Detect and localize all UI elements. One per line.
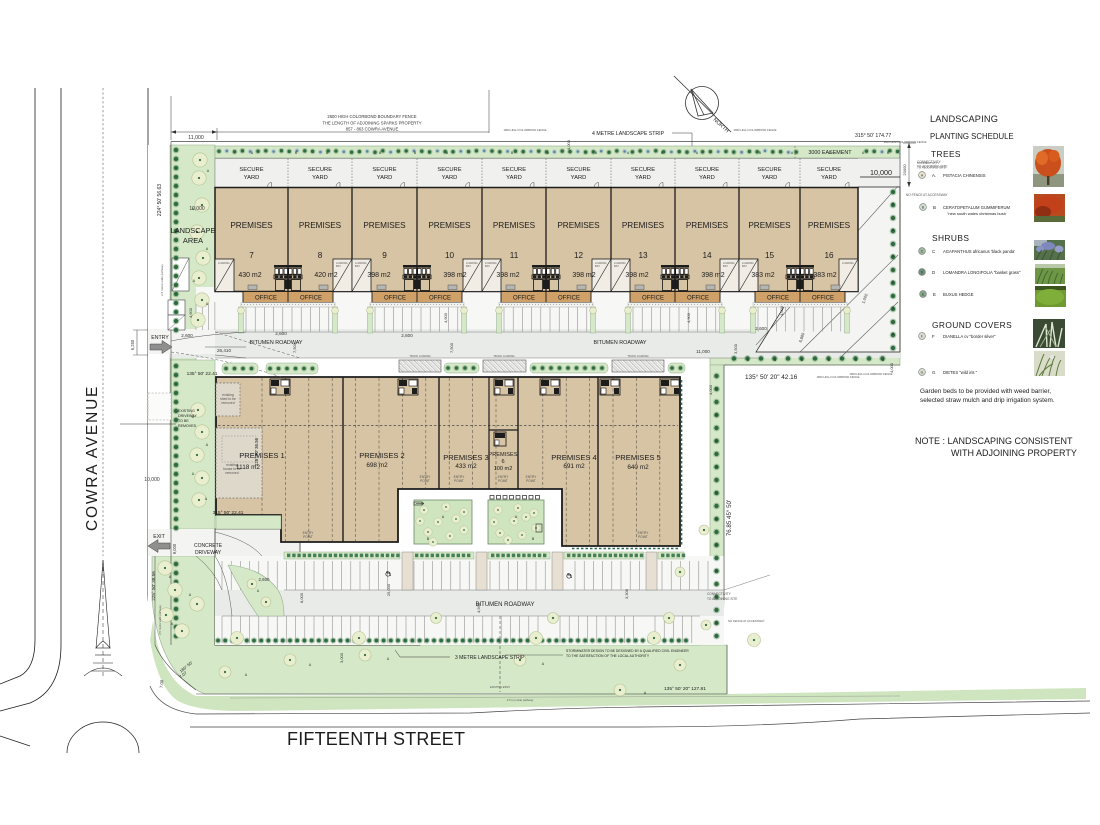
svg-text:SECURE: SECURE [566,167,590,173]
svg-text:100 m2: 100 m2 [494,466,513,472]
svg-text:PREMISES: PREMISES [299,221,342,230]
svg-text:EXIT: EXIT [153,534,165,540]
svg-text:691 m2: 691 m2 [563,463,585,470]
svg-text:PREMISES 4: PREMISES 4 [551,453,597,462]
svg-text:TREES: TREES [931,149,961,159]
svg-text:398 m2: 398 m2 [701,272,724,279]
svg-text:OFFICE: OFFICE [812,296,834,302]
svg-text:CONCRETE: CONCRETE [194,543,223,549]
svg-text:SECURE: SECURE [308,167,332,173]
svg-text:135° 50' 20" 42.16: 135° 50' 20" 42.16 [745,373,798,381]
svg-text:YARD: YARD [699,175,715,181]
svg-text:NOTE : LANDSCAPING CONSISTENT: NOTE : LANDSCAPING CONSISTENT [915,436,1073,446]
svg-text:PREMISES: PREMISES [808,221,851,230]
svg-text:PREMISES: PREMISES [230,221,273,230]
svg-text:2,600: 2,600 [259,577,271,582]
svg-text:POINT: POINT [498,479,508,483]
svg-text:CONNECTIVITY: CONNECTIVITY [917,161,939,165]
svg-text:YARD: YARD [377,175,393,181]
svg-text:OFFICE: OFFICE [767,296,789,302]
svg-text:PREMISES: PREMISES [748,221,791,230]
svg-text:LOMANDRA LONGIFOLIA "basket gr: LOMANDRA LONGIFOLIA "basket grass" [943,270,1021,275]
svg-text:TO ADJOINING SITE: TO ADJOINING SITE [707,597,737,601]
svg-text:YARD: YARD [762,175,778,181]
svg-text:225° 50' 36.56: 225° 50' 36.56 [254,437,259,466]
svg-text:OFFICE: OFFICE [513,296,535,302]
svg-text:LANDSCAPING: LANDSCAPING [930,114,998,124]
svg-text:FIFTEENTH STREET: FIFTEENTH STREET [287,729,465,749]
svg-text:13: 13 [638,251,648,260]
svg-text:PLANTING SCHEDULE: PLANTING SCHEDULE [930,132,1014,141]
svg-text:11,000: 11,000 [188,135,204,141]
svg-text:PREMISES: PREMISES [363,221,406,230]
svg-text:BAY: BAY [614,264,619,268]
svg-text:SHRUBS: SHRUBS [932,233,969,243]
svg-text:430 m2: 430 m2 [238,272,261,279]
svg-text:F: F [921,335,923,339]
svg-text:YARD: YARD [442,175,458,181]
svg-text:YARD: YARD [571,175,587,181]
svg-text:POINT: POINT [454,479,464,483]
svg-text:8,000: 8,000 [299,592,304,603]
svg-text:BITUMEN ROADWAY: BITUMEN ROADWAY [593,340,646,346]
svg-text:10,000: 10,000 [870,168,892,177]
svg-text:TO BE: TO BE [178,419,189,423]
svg-text:PREMISES: PREMISES [557,221,600,230]
svg-text:SECURE: SECURE [437,167,461,173]
svg-text:SECURE: SECURE [695,167,719,173]
svg-text:315° 50' 22.41: 315° 50' 22.41 [213,510,244,516]
svg-text:"new south wales christmas bus: "new south wales christmas bush [947,211,1006,216]
svg-text:OFFICE: OFFICE [642,296,664,302]
svg-text:POINT: POINT [420,479,430,483]
svg-text:CONNECTIVITY: CONNECTIVITY [707,592,732,596]
svg-text:OFFICE: OFFICE [687,296,709,302]
svg-text:AGAPANTHUS africanus 'black: AGAPANTHUS africanus 'black panda' [943,249,1015,254]
svg-text:1800 HIGH COLORBOND FENCE: 1800 HIGH COLORBOND FENCE [816,375,859,379]
svg-text:9,000: 9,000 [172,543,177,554]
svg-text:383 m2: 383 m2 [813,272,836,279]
svg-text:PREMISES 2: PREMISES 2 [359,451,405,460]
svg-text:THE LENGTH OF ADJOINING SPARKS: THE LENGTH OF ADJOINING SPARKS PROPERTY [322,121,421,126]
svg-text:PREMISES: PREMISES [493,221,536,230]
svg-text:SECURE: SECURE [817,167,841,173]
svg-text:TO THE SATISFACTION OF THE LOC: TO THE SATISFACTION OF THE LOCAL AUTHORI… [566,654,650,658]
svg-text:4,000: 4,000 [889,362,894,373]
svg-text:WITH ADJOINING PROPERTY: WITH ADJOINING PROPERTY [951,448,1077,458]
svg-text:E: E [933,292,936,297]
svg-text:DRIVEWAY: DRIVEWAY [195,550,222,556]
svg-text:25,000: 25,000 [386,583,391,596]
svg-text:1800 HIGH COLORBOND FENCE: 1800 HIGH COLORBOND FENCE [503,128,546,132]
svg-text:PISTACIA CHINENSIS: PISTACIA CHINENSIS [943,173,986,178]
svg-text:15: 15 [765,251,775,260]
svg-text:BAY: BAY [723,264,728,268]
svg-text:14: 14 [702,251,712,260]
svg-text:698 m2: 698 m2 [366,462,388,469]
svg-text:REMOVED: REMOVED [178,424,197,428]
svg-text:removed: removed [221,401,234,405]
svg-text:1800 HIGH COLORBOND FENCE: 1800 HIGH COLORBOND FENCE [883,140,926,144]
svg-text:TRUCK LOADING: TRUCK LOADING [627,354,648,358]
svg-text:398 m2: 398 m2 [367,272,390,279]
svg-text:11,000: 11,000 [696,349,710,354]
svg-text:DRIVEWAY: DRIVEWAY [178,414,197,418]
svg-text:433 m2: 433 m2 [455,463,477,470]
svg-text:2,600: 2,600 [181,333,193,338]
svg-text:12: 12 [574,251,584,260]
svg-text:7: 7 [249,251,254,260]
svg-text:POINT: POINT [526,479,536,483]
svg-text:7.00: 7.00 [159,679,165,688]
svg-text:6: 6 [501,459,504,465]
svg-text:7,500: 7,500 [449,342,454,353]
svg-text:POINT: POINT [638,535,648,539]
svg-text:3,500: 3,500 [733,343,738,354]
svg-text:BAY: BAY [336,264,341,268]
svg-text:PREMISES: PREMISES [686,221,729,230]
svg-text:857 - 863 COWRA AVENUE: 857 - 863 COWRA AVENUE [346,127,399,132]
svg-text:NO FENCE AT ACCESSWAY: NO FENCE AT ACCESSWAY [906,193,949,197]
svg-text:POINT: POINT [303,535,313,539]
svg-text:4,600: 4,600 [188,307,193,318]
svg-text:OFFICE: OFFICE [255,296,277,302]
svg-text:4 METRE LANDSCAPE STRIP: 4 METRE LANDSCAPE STRIP [592,131,665,137]
svg-text:2.5 (m) wide pathway: 2.5 (m) wide pathway [507,698,534,702]
svg-text:BAY: BAY [742,264,747,268]
svg-text:YARD: YARD [821,175,837,181]
svg-text:SECURE: SECURE [757,167,781,173]
svg-text:11: 11 [510,251,519,260]
svg-text:SECURE: SECURE [631,167,655,173]
svg-text:CERATOPETALUM GUMMIFERUM: CERATOPETALUM GUMMIFERUM [943,205,1011,210]
svg-text:YARD: YARD [244,175,260,181]
svg-text:PREMISES 5: PREMISES 5 [615,453,661,462]
svg-text:PREMISES: PREMISES [622,221,665,230]
svg-text:9: 9 [382,251,387,260]
svg-text:PREMISES 1: PREMISES 1 [239,451,285,460]
svg-text:10,000: 10,000 [189,206,205,212]
svg-text:4,000: 4,000 [779,305,784,316]
svg-text:2,600: 2,600 [401,333,413,338]
svg-text:16: 16 [824,251,834,260]
svg-text:BAY: BAY [466,264,471,268]
svg-text:TRUCK LOADING: TRUCK LOADING [493,354,514,358]
svg-text:398 m2: 398 m2 [443,272,466,279]
svg-text:SECURE: SECURE [372,167,396,173]
svg-text:GROUND COVERS: GROUND COVERS [932,320,1012,330]
svg-text:2.5 metre wide pathway: 2.5 metre wide pathway [158,605,162,635]
svg-text:Garden beds to be provided wit: Garden beds to be provided with weed bar… [920,388,1051,395]
svg-text:YARD: YARD [635,175,651,181]
svg-text:383 m2: 383 m2 [751,272,774,279]
svg-text:YARD: YARD [312,175,328,181]
svg-text:2,600: 2,600 [755,326,767,331]
svg-text:10: 10 [445,251,455,260]
svg-text:398 m2: 398 m2 [496,272,519,279]
svg-text:A.: A. [932,173,936,178]
svg-text:4,000: 4,000 [566,139,571,150]
svg-text:3,300: 3,300 [624,588,629,599]
svg-text:4,000: 4,000 [708,384,713,395]
svg-text:G: G [921,371,924,375]
svg-text:398 m2: 398 m2 [572,272,595,279]
svg-text:640 m2: 640 m2 [627,464,649,471]
svg-text:LOADING: LOADING [842,261,854,265]
svg-text:removed: removed [225,471,238,475]
svg-text:NO FENCE AT ACCESSWAY: NO FENCE AT ACCESSWAY [728,619,765,623]
svg-text:BITUMEN ROADWAY: BITUMEN ROADWAY [475,602,534,608]
svg-text:LOADING: LOADING [218,261,230,265]
svg-text:LANDSCAPE: LANDSCAPE [171,226,216,235]
svg-text:PREMISES 3: PREMISES 3 [443,453,489,462]
svg-text:G: G [932,370,936,375]
svg-text:D: D [932,270,935,275]
svg-text:8: 8 [318,251,323,260]
svg-text:1800 HIGH COLORBOND FENCE: 1800 HIGH COLORBOND FENCE [733,128,776,132]
svg-text:20000: 20000 [902,164,907,176]
svg-text:3,000: 3,000 [339,652,344,663]
svg-text:AREA: AREA [183,236,203,245]
svg-text:2,600: 2,600 [275,331,287,336]
svg-text:YARD: YARD [506,175,522,181]
svg-text:2600 HIGH COLORBOND BOUNDARY F: 2600 HIGH COLORBOND BOUNDARY FENCE [327,114,416,119]
svg-text:C: C [932,249,935,254]
svg-text:224° 50' 56.63: 224° 50' 56.63 [157,184,163,216]
svg-text:TO ADJOINING SITE: TO ADJOINING SITE [917,166,946,170]
svg-text:BAY: BAY [355,264,360,268]
svg-text:SECURE: SECURE [239,167,263,173]
svg-text:SECURE: SECURE [502,167,526,173]
svg-text:26,410: 26,410 [217,348,231,353]
svg-text:PREMISES: PREMISES [489,452,518,458]
svg-text:6,250: 6,250 [130,339,135,350]
svg-text:76.85 45° 50': 76.85 45° 50' [726,500,733,536]
svg-text:TRUCK LOADING: TRUCK LOADING [409,354,430,358]
svg-text:225° 50' 38.56: 225° 50' 38.56 [151,571,156,601]
svg-text:PREMISES: PREMISES [428,221,471,230]
svg-text:BAY: BAY [485,264,490,268]
svg-text:selected straw mulch and drip: selected straw mulch and drip irrigation… [920,397,1055,404]
svg-text:EXISTING ESMT: EXISTING ESMT [490,685,510,689]
svg-text:4,930: 4,930 [476,602,481,613]
svg-text:BUXUS HEDGE: BUXUS HEDGE [943,292,974,297]
svg-text:135° 50' 22.41: 135° 50' 22.41 [187,371,218,377]
svg-text:OFFICE: OFFICE [300,296,322,302]
svg-text:398 m2: 398 m2 [625,272,648,279]
svg-text:3000 EASEMENT: 3000 EASEMENT [808,150,852,156]
svg-text:4,900: 4,900 [443,312,448,323]
svg-text:135° 50' 20" 127.81: 135° 50' 20" 127.81 [664,686,706,692]
svg-text:F: F [932,334,935,339]
svg-text:B: B [933,205,936,210]
svg-text:ENTRY: ENTRY [151,335,169,341]
svg-text:DIANELLA cv "border silver": DIANELLA cv "border silver" [943,334,996,339]
svg-text:3 METRE LANDSCAPE STRIP: 3 METRE LANDSCAPE STRIP [455,655,525,661]
svg-text:EXISTING: EXISTING [178,409,195,413]
svg-text:DIETES "wild iris ": DIETES "wild iris " [943,370,978,375]
svg-text:BAY: BAY [595,264,600,268]
svg-text:COWRA AVENUE: COWRA AVENUE [84,385,101,531]
svg-text:OFFICE: OFFICE [384,296,406,302]
svg-text:2.5 metre wide pathway: 2.5 metre wide pathway [160,264,164,296]
svg-text:4,900: 4,900 [686,312,691,323]
svg-text:OFFICE: OFFICE [558,296,580,302]
svg-text:STORMWATER DESIGN TO BE DESIGN: STORMWATER DESIGN TO BE DESIGNED BY A QU… [566,649,689,653]
svg-text:10,000: 10,000 [144,477,160,483]
svg-text:420 m2: 420 m2 [314,272,337,279]
svg-text:OFFICE: OFFICE [429,296,451,302]
svg-text:7,500: 7,500 [292,342,297,353]
svg-text:315° 50' 174.77: 315° 50' 174.77 [855,133,891,139]
